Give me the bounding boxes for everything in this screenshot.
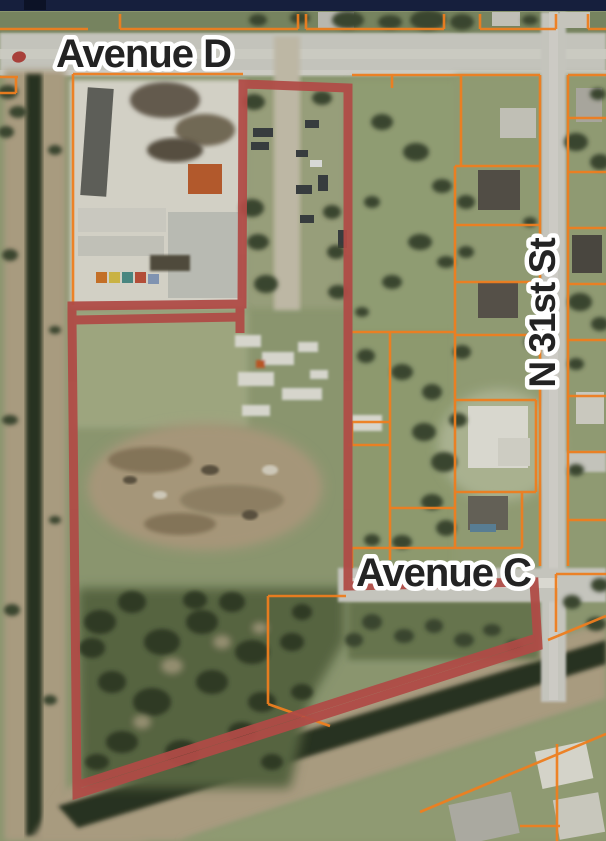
- street-label-avenue-d: Avenue D: [56, 32, 231, 76]
- map-viewport[interactable]: Avenue D Avenue C N 31st St: [0, 0, 606, 841]
- aerial-map[interactable]: Avenue D Avenue C N 31st St: [0, 0, 606, 841]
- street-label-avenue-c: Avenue C: [356, 551, 531, 595]
- street-label-n-31st-st: N 31st St: [522, 238, 563, 388]
- top-bar: [0, 0, 606, 11]
